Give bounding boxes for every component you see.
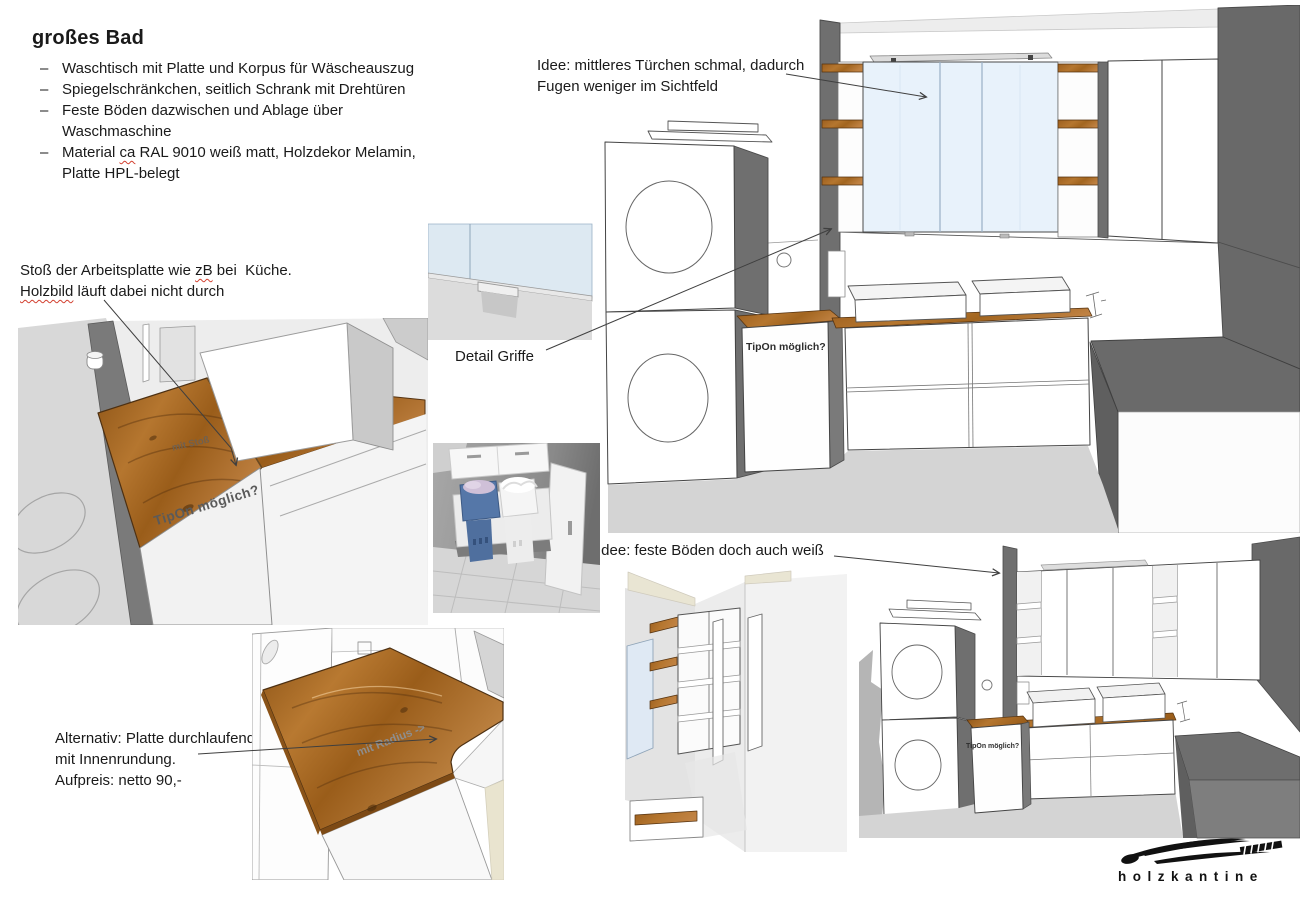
slide-grosses-bad: großes Bad – Waschtisch mit Platte und K…: [0, 0, 1300, 901]
note-stoss-arbeitsplatte: Stoß der Arbeitsplatte wie zB bei Küche.…: [20, 260, 350, 302]
note-line2: Holzbild läuft dabei nicht durch: [20, 281, 350, 302]
top-box: [668, 121, 758, 132]
bullet-dash: –: [40, 58, 62, 79]
basin-left: [1027, 688, 1095, 727]
wall-pillar: [1003, 546, 1017, 728]
render-worktop-joint-closeup: [18, 318, 428, 625]
list-item-text-pre: Material: [62, 144, 120, 161]
open-door-2: [748, 614, 762, 751]
open-bay-right: [1153, 565, 1177, 677]
door-knob: [87, 352, 103, 370]
tall-cabinets-right: [1108, 59, 1218, 243]
basin-right: [972, 277, 1070, 316]
bullet-dash: –: [40, 79, 62, 100]
list-item: – Waschtisch mit Platte und Korpus für W…: [40, 58, 460, 79]
list-item: – Spiegelschränkchen, seitlich Schrank m…: [40, 79, 460, 100]
washer-dryer-stack: [880, 600, 981, 816]
wall-socket: [777, 253, 791, 267]
bench-platform: [1175, 732, 1300, 838]
render-open-cabinet-corner: [625, 568, 847, 858]
spellcheck-word: ca: [120, 144, 136, 161]
render-variant-white-shelves: [845, 532, 1300, 857]
wall-right: [1218, 5, 1300, 369]
open-bay-left: [1017, 571, 1041, 676]
logo-holzkantine: holzkantine: [1118, 833, 1288, 887]
drawer-fronts: [1025, 720, 1175, 799]
note-line1: Stoß der Arbeitsplatte wie zB bei Küche.: [20, 260, 350, 281]
note-idee-boeden: Idee: feste Böden doch auch weiß: [597, 540, 824, 561]
spellcheck-word: Holzbild: [20, 283, 73, 300]
list-item: – Material ca RAL 9010 weiß matt, Holzde…: [40, 142, 460, 184]
door-edge: [143, 324, 149, 382]
label-tipon-small: TipOn möglich?: [966, 743, 1019, 750]
wall-cabinets: [1017, 560, 1260, 680]
lower-block: [630, 797, 703, 841]
note-text: bei Küche.: [213, 262, 292, 279]
side-panel: [1098, 62, 1108, 238]
tipon-cabinet: [967, 716, 1031, 813]
basin-right: [1097, 683, 1165, 722]
note-text: läuft dabei nicht durch: [73, 283, 224, 300]
open-shelf-unit: [678, 608, 740, 754]
wall-socket: [982, 680, 992, 690]
wall-panel: [160, 326, 195, 382]
vanity: [832, 277, 1106, 450]
open-door-1: [713, 619, 723, 765]
label-tipon-main: TipOn möglich?: [746, 341, 826, 353]
page-title: großes Bad: [32, 27, 144, 50]
door-handle: [568, 521, 572, 535]
label-detail-griffe: Detail Griffe: [455, 346, 534, 367]
list-item-text: Feste Böden dazwischen und Ablage über W…: [62, 100, 343, 142]
mirror-cabinet: [863, 53, 1058, 238]
logo-wordmark: holzkantine: [1118, 869, 1288, 884]
list-item: – Feste Böden dazwischen und Ablage über…: [40, 100, 460, 142]
render-main-bathroom-wall: [600, 5, 1300, 533]
basin-left: [848, 282, 966, 322]
light-rail: [870, 53, 1052, 62]
bullet-dash: –: [40, 100, 62, 121]
note-text: Stoß der Arbeitsplatte wie: [20, 262, 195, 279]
list-item-text: Waschtisch mit Platte und Korpus für Wäs…: [62, 58, 414, 79]
render-detail-handle: [428, 222, 598, 340]
render-worktop-radius: [252, 628, 504, 880]
floor-cream: [485, 780, 504, 880]
open-shelves-right: [1058, 62, 1108, 238]
tipon-cabinet: [737, 310, 844, 472]
list-item-text: Spiegelschränkchen, seitlich Schrank mit…: [62, 79, 406, 100]
top-shelf: [648, 131, 772, 142]
wall-niche: [828, 251, 845, 297]
feature-list: – Waschtisch mit Platte und Korpus für W…: [40, 58, 460, 184]
ceiling: [840, 9, 1218, 33]
logo-brush-strokes: [1118, 833, 1288, 867]
photo-laundry-pullout: [433, 443, 600, 613]
spellcheck-word: zB: [195, 262, 213, 279]
bullet-dash: –: [40, 142, 62, 163]
list-item-text: Material ca RAL 9010 weiß matt, Holzdeko…: [62, 142, 416, 184]
bench-platform: [1090, 337, 1300, 533]
mirror-door: [627, 639, 653, 759]
dimension-mark: [1177, 701, 1190, 722]
